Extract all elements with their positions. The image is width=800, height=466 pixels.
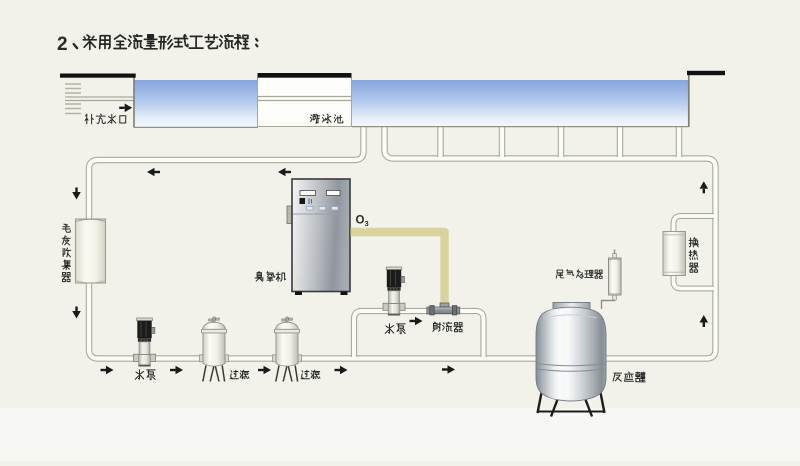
svg-text:2: 2 [57,34,68,55]
svg-text:3: 3 [365,219,369,228]
svg-text:O: O [356,215,365,227]
